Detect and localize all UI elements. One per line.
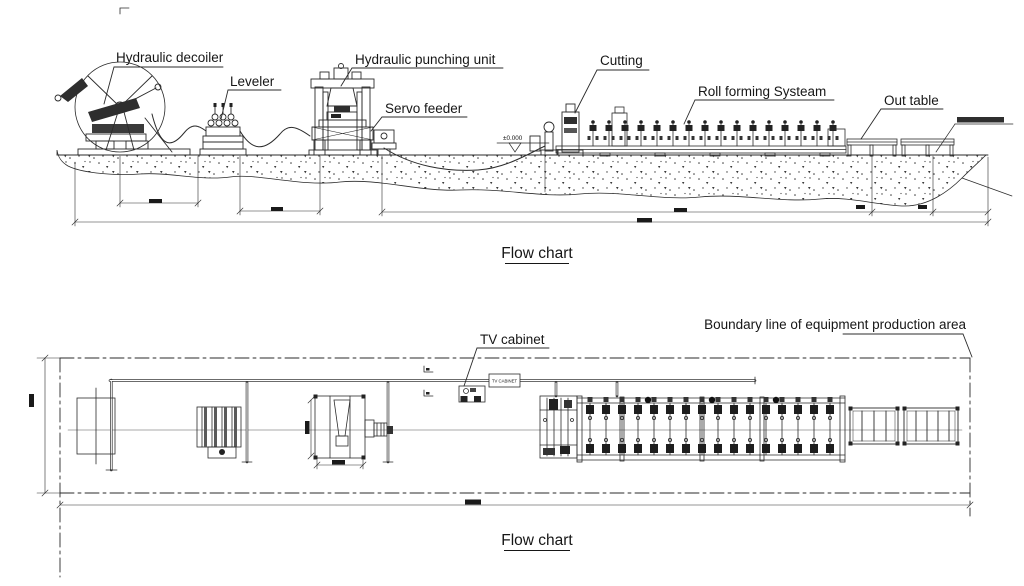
label-tv-cabinet: TV cabinet (480, 332, 545, 347)
label-hydraulic-punching-unit: Hydraulic punching unit (355, 52, 496, 67)
plan-press-machine (305, 395, 393, 470)
plan-view-title: Flow chart (501, 532, 573, 549)
plan-storage-square (77, 388, 115, 464)
side-elevation-view (55, 8, 1013, 226)
safety-fence (106, 377, 755, 470)
flow-chart-page: Hydraulic decoiler Leveler Hydraulic pun… (0, 0, 1024, 586)
tv-cabinet-box-label: TV CABINET (492, 379, 518, 384)
label-cutting: Cutting (600, 53, 643, 68)
foundation-concrete (57, 150, 986, 206)
roll-forming-drawing (556, 107, 846, 156)
plan-cutting (540, 396, 577, 458)
label-roll-forming-system: Roll forming Systeam (698, 84, 826, 99)
plan-left-dimension (29, 355, 60, 496)
label-hydraulic-decoiler: Hydraulic decoiler (116, 50, 224, 65)
flow-chart-drawing: Hydraulic decoiler Leveler Hydraulic pun… (0, 0, 1024, 586)
label-servo-feeder: Servo feeder (385, 101, 463, 116)
decoiler-drawing (55, 62, 190, 155)
label-leveler: Leveler (230, 74, 275, 89)
small-note-blob (936, 117, 1013, 152)
floor-level-value: ±0.000 (503, 135, 523, 142)
plan-bottom-dimension (57, 500, 973, 509)
cutting-drawing (530, 104, 583, 155)
servo-feeder-drawing (372, 130, 396, 155)
corner-tick (120, 8, 129, 14)
label-out-table: Out table (884, 93, 939, 108)
right-slope-line (962, 178, 1012, 196)
punching-unit-drawing (309, 64, 377, 156)
plan-coil-machine (197, 407, 241, 458)
label-boundary-line: Boundary line of equipment production ar… (704, 317, 966, 332)
plan-out-tables (849, 407, 960, 446)
side-view-title: Flow chart (501, 245, 573, 262)
out-table-drawing (847, 139, 954, 156)
plan-roll-former (577, 396, 845, 462)
